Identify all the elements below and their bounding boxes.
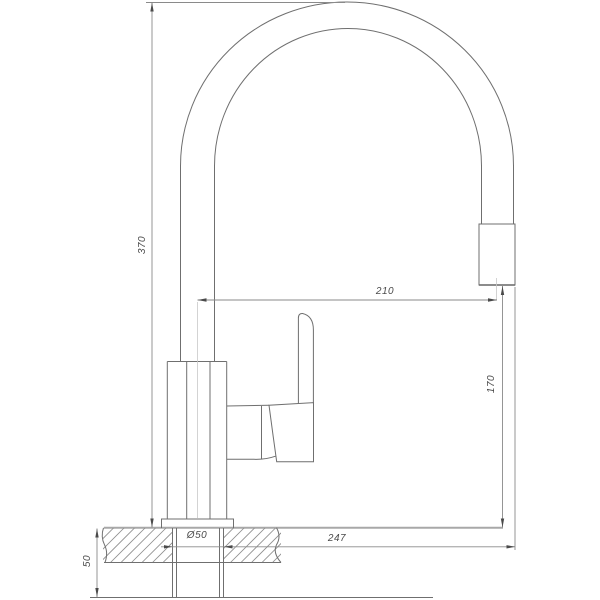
drawing-canvas <box>0 0 600 600</box>
dimension-lines <box>97 3 515 598</box>
spout-inner-curve <box>215 28 482 166</box>
base-flange <box>162 519 234 528</box>
dim-label-spout-height: 170 <box>487 374 497 394</box>
dim-label-height-overall: 370 <box>138 235 148 255</box>
faucet-body <box>167 362 226 520</box>
dim-label-spout-reach: 210 <box>375 287 395 297</box>
thick-edges <box>104 285 515 528</box>
handle-assembly <box>227 313 314 461</box>
dim-label-under-counter-depth: 50 <box>83 554 93 568</box>
dim-label-mounting-hole-diameter: Ø50 <box>186 531 208 541</box>
spout-outer-curve <box>181 2 514 166</box>
center-lines <box>198 278 497 518</box>
faucet-technical-drawing: 370 210 170 Ø50 247 50 <box>0 0 600 600</box>
handle-base <box>269 403 314 462</box>
dim-label-reach-overall: 247 <box>327 534 347 544</box>
counter-break-left <box>102 528 106 563</box>
handle-lever <box>298 313 313 403</box>
spray-head <box>479 224 515 285</box>
